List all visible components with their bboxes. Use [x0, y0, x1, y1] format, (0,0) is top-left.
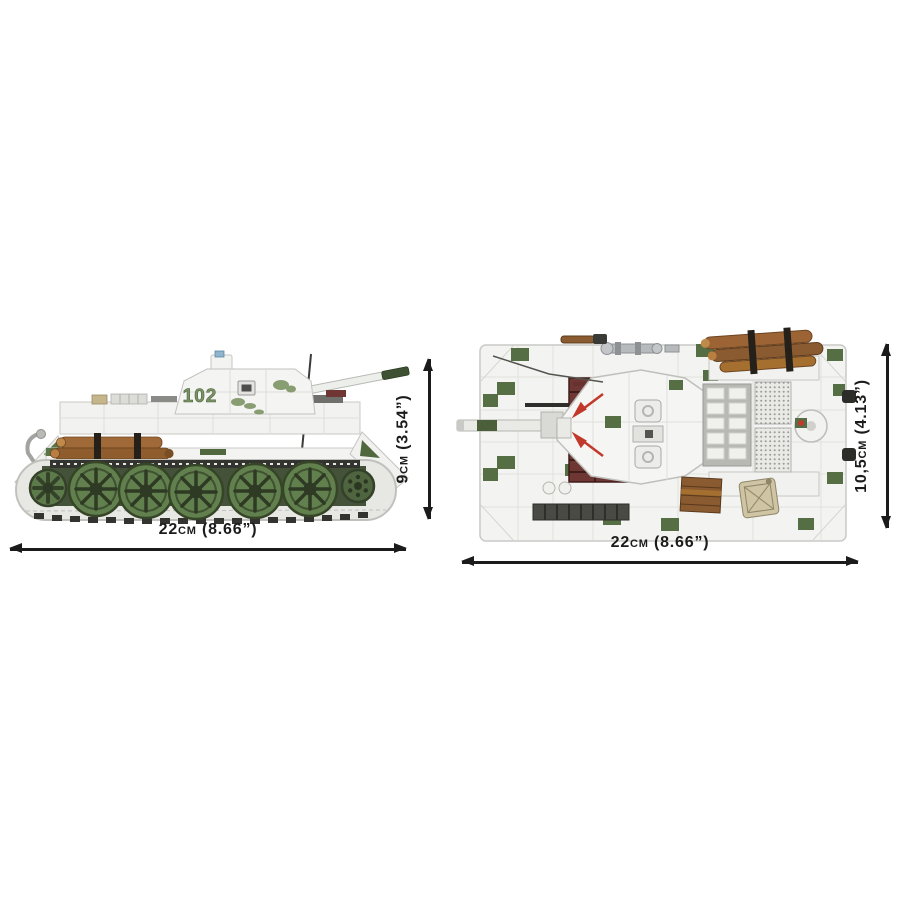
turret: 102	[175, 351, 315, 415]
top-width-label: 10,5cm (4.13”)	[853, 379, 871, 493]
side-height-dimension: 9cm (3.54”)	[382, 358, 426, 520]
wooden-crate	[680, 477, 722, 513]
shovel-tool	[561, 334, 607, 344]
top-width-dimension: 10,5cm (4.13”)	[840, 344, 884, 528]
log-bundle	[50, 433, 173, 463]
top-length-label: 22cm (8.66”)	[462, 534, 858, 552]
idler-wheel	[30, 470, 66, 506]
turret-marking: 102	[183, 386, 218, 407]
periscope-icon	[215, 351, 224, 357]
road-wheels	[30, 462, 374, 519]
jerry-can	[739, 478, 780, 519]
drive-sprocket	[342, 470, 374, 502]
hatch	[635, 400, 661, 422]
periscope-icon	[543, 482, 555, 494]
product-dimensions-page: { "page": { "background_color": "#ffffff…	[0, 0, 900, 900]
side-width-arrow	[10, 548, 406, 551]
hatch	[635, 446, 661, 468]
periscope-icon	[559, 482, 571, 494]
top-width-arrow	[886, 344, 889, 528]
tank-side-view-image: 102	[8, 350, 423, 525]
top-length-arrow	[462, 561, 858, 564]
side-height-arrow	[428, 359, 431, 519]
exhaust-grille	[533, 504, 629, 520]
tank-top-view-image	[453, 322, 873, 549]
side-height-label: 9cm (3.54”)	[395, 394, 413, 483]
side-width-label: 22cm (8.66”)	[10, 521, 406, 539]
